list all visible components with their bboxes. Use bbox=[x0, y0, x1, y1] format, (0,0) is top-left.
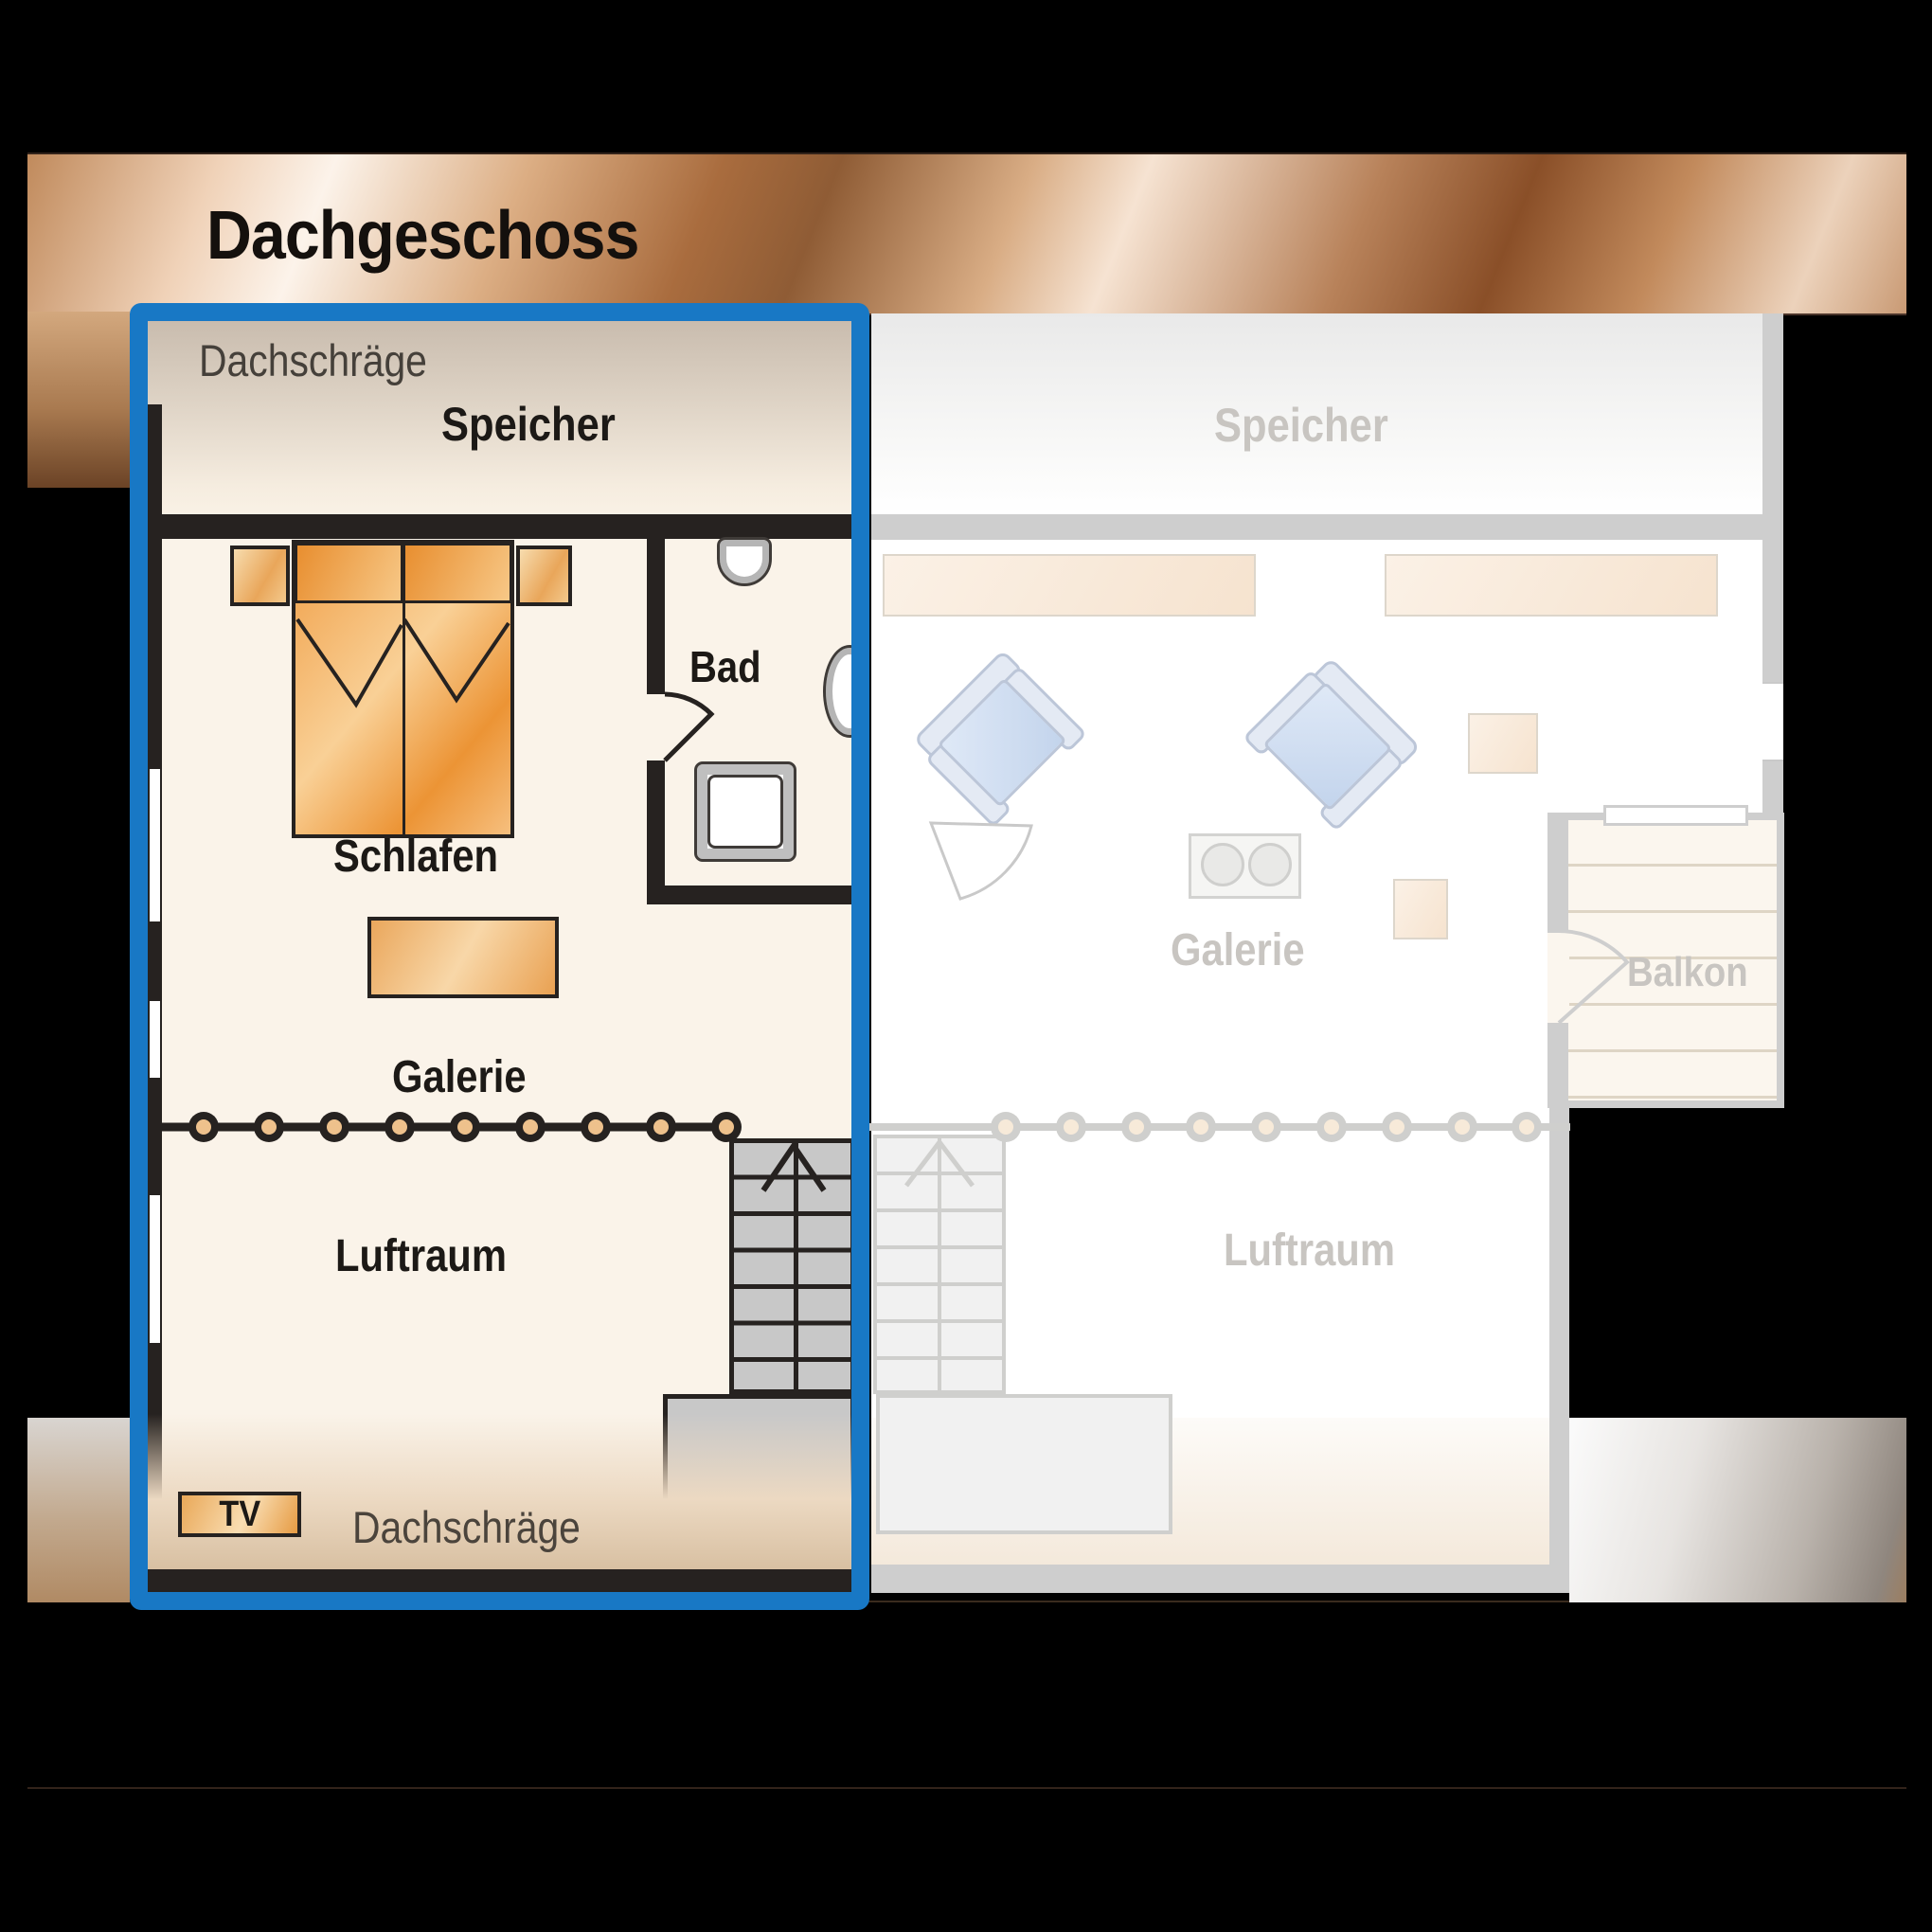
faded-stairs bbox=[873, 1135, 1006, 1394]
faded-stairs-landing bbox=[876, 1394, 1172, 1534]
faded-label-air-space: Luftraum bbox=[1224, 1225, 1395, 1277]
faded-wardrobe-left bbox=[883, 554, 1256, 617]
window-icon bbox=[148, 767, 162, 923]
dresser-icon bbox=[367, 917, 559, 998]
bathroom-wall bbox=[647, 539, 665, 694]
highlighted-floorplan: Dachschräge Speicher Bad bbox=[148, 321, 851, 1592]
wall-below-attic bbox=[148, 514, 851, 539]
label-bedroom: Schlafen bbox=[333, 831, 498, 883]
faded-label-attic: Speicher bbox=[1214, 398, 1388, 453]
label-attic: Speicher bbox=[441, 397, 616, 452]
shower-icon bbox=[697, 764, 794, 859]
stairs-divider bbox=[794, 1143, 798, 1389]
burner-icon bbox=[1201, 843, 1244, 886]
label-bathroom: Bad bbox=[689, 641, 761, 692]
door-arc-icon bbox=[665, 694, 711, 760]
sink-icon bbox=[826, 648, 851, 735]
faded-side-table bbox=[1468, 713, 1538, 774]
floorplan-infographic: Dachgeschoss bbox=[0, 0, 1932, 1932]
stairs-divider bbox=[938, 1138, 941, 1390]
bottom-wall bbox=[148, 1569, 851, 1592]
faded-stove-icon bbox=[1189, 833, 1301, 899]
faded-right-wall-lower bbox=[1549, 1108, 1569, 1593]
tv-label: TV bbox=[219, 1494, 260, 1535]
faded-wall-bottom bbox=[871, 1565, 1569, 1593]
faded-balcony-window bbox=[1603, 805, 1748, 826]
faded-wardrobe-right bbox=[1385, 554, 1718, 617]
left-wall bbox=[148, 923, 162, 999]
bathroom-wall bbox=[647, 760, 665, 885]
shower-tray bbox=[707, 775, 783, 849]
left-wall bbox=[148, 404, 162, 514]
bottom-band-right-column bbox=[1569, 1418, 1906, 1602]
bottom-band-left-column bbox=[27, 1418, 130, 1602]
faded-right-wall-window bbox=[1762, 682, 1783, 761]
left-wall bbox=[148, 1080, 162, 1193]
double-bed-icon bbox=[292, 540, 514, 838]
label-gallery: Galerie bbox=[392, 1051, 527, 1103]
bed-divider bbox=[402, 544, 405, 834]
pillow-icon bbox=[295, 543, 403, 603]
window-icon bbox=[148, 999, 162, 1080]
faded-label-balcony: Balkon bbox=[1627, 949, 1748, 996]
railing-posts bbox=[188, 1112, 742, 1142]
faded-balcony-door-gap bbox=[1547, 933, 1569, 1023]
label-roof-slope-top: Dachschräge bbox=[199, 334, 427, 386]
label-roof-slope-bottom: Dachschräge bbox=[352, 1501, 581, 1553]
stairs bbox=[729, 1138, 851, 1394]
top-band-left-column bbox=[27, 312, 130, 488]
label-air-space: Luftraum bbox=[335, 1230, 507, 1282]
left-wall bbox=[148, 539, 162, 767]
page-title: Dachgeschoss bbox=[206, 197, 639, 275]
nightstand-icon bbox=[230, 546, 290, 606]
faded-wall-horizontal bbox=[871, 514, 1783, 540]
faded-label-gallery: Galerie bbox=[1171, 924, 1305, 976]
faded-small-table bbox=[1393, 879, 1448, 939]
nightstand-icon bbox=[516, 546, 572, 606]
bottom-metal-band bbox=[27, 1601, 1906, 1789]
bathroom-wall-bottom bbox=[647, 885, 851, 904]
tv-icon: TV bbox=[178, 1492, 301, 1537]
toilet-icon bbox=[720, 540, 769, 583]
pillow-icon bbox=[402, 543, 512, 603]
window-icon bbox=[148, 1193, 162, 1345]
highlight-selection-box[interactable]: Dachschräge Speicher Bad bbox=[130, 303, 869, 1610]
burner-icon bbox=[1248, 843, 1292, 886]
